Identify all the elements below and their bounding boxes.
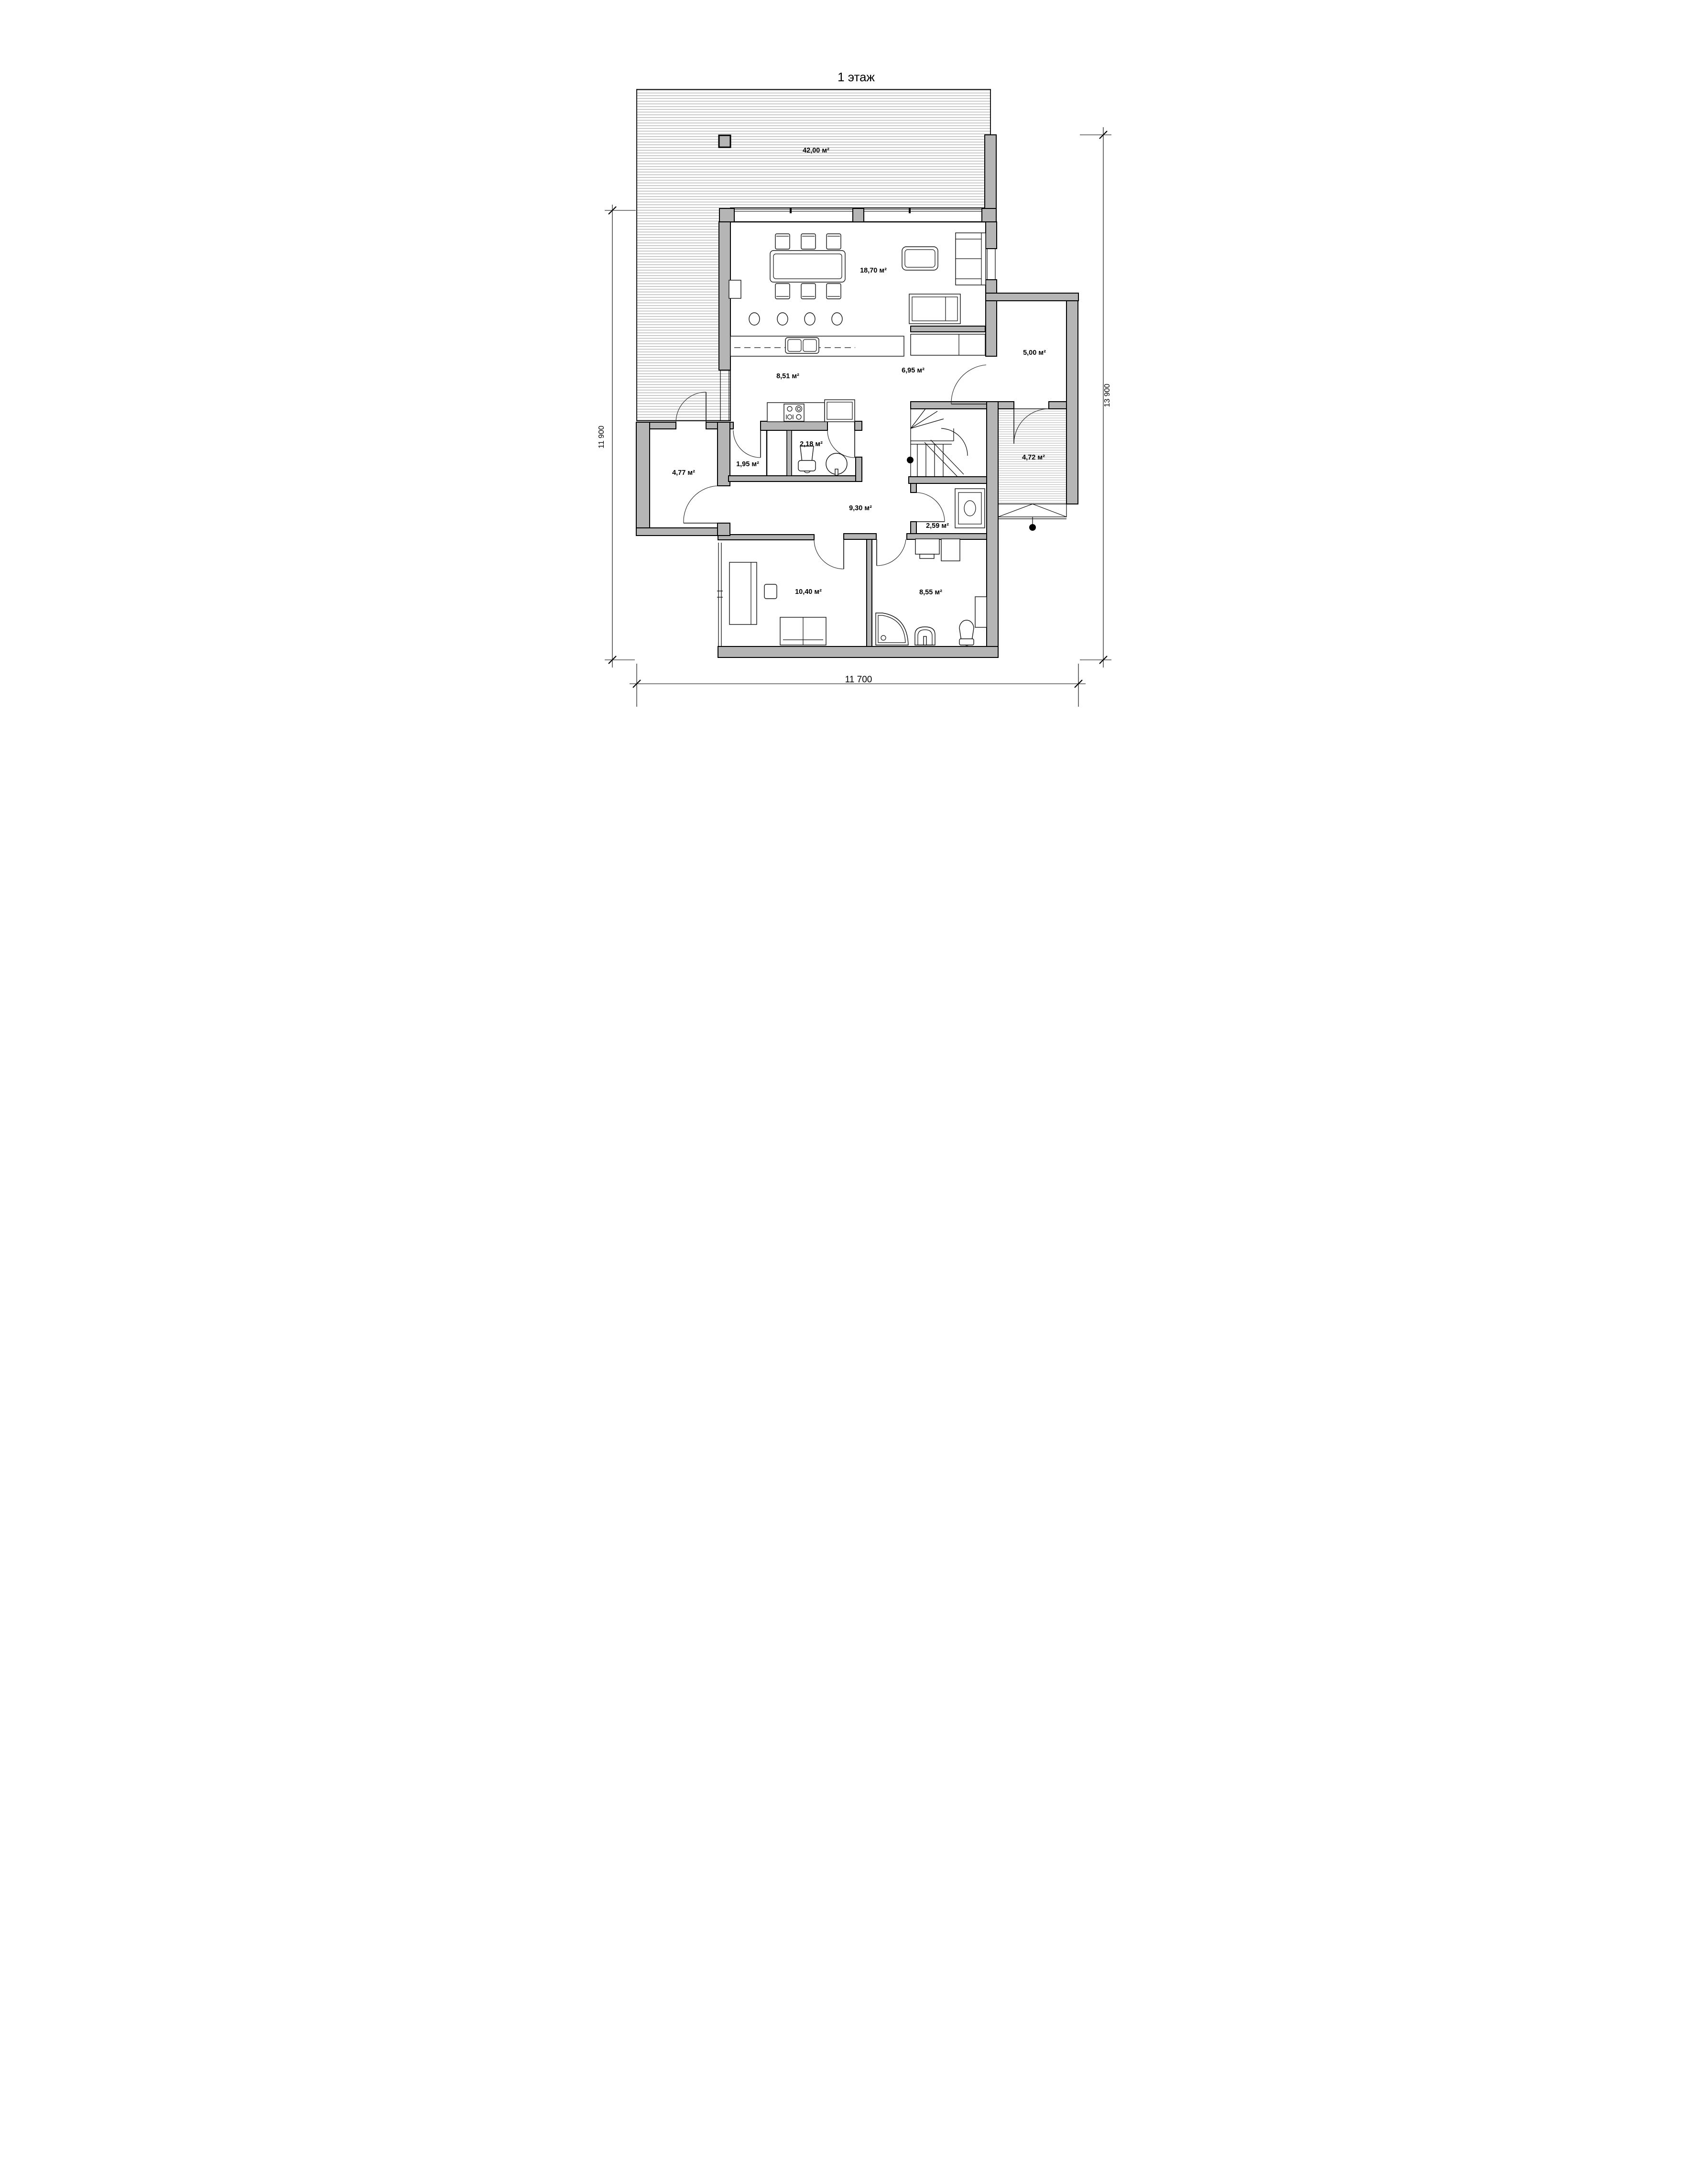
fridge [825, 400, 855, 422]
living-room-window-band [719, 208, 996, 222]
room-label-hallway: 9,30 м² [849, 504, 872, 512]
shower-tray [876, 613, 908, 645]
room-label-storage: 4,77 м² [672, 469, 695, 477]
toilet-symbol-bathroom [959, 620, 974, 646]
staircase [907, 409, 968, 477]
washbasin-wc [826, 453, 847, 475]
room-label-bathroom: 8,55 м² [919, 589, 942, 596]
dimension-text-right: 13 900 [1103, 383, 1111, 407]
dimension-text-left: 11 900 [598, 426, 606, 449]
desk [729, 562, 757, 624]
room-label-pantry: 5,00 м² [1023, 349, 1046, 357]
dining-table [770, 251, 845, 282]
dimension-bottom [630, 664, 1086, 707]
dimension-text-bottom: 11 700 [845, 675, 872, 685]
drawing-sheet: 1 этаж 42,00 м² 18,70 м² 8,51 м² 6,95 м²… [569, 0, 1139, 726]
terrace-post [719, 135, 730, 147]
stair-reference-dot [907, 457, 914, 463]
room-label-small-hall: 1,95 м² [736, 460, 759, 468]
room-label-vestibule: 4,72 м² [1022, 454, 1045, 461]
tall-cabinet [975, 597, 987, 627]
room-label-kitchen: 8,51 м² [776, 372, 799, 380]
entrance-porch [998, 504, 1066, 531]
sideboard [729, 280, 741, 298]
sofa [956, 233, 986, 285]
room-label-boiler: 2,59 м² [926, 522, 949, 530]
pedestal-sink [915, 627, 935, 645]
room-label-living: 18,70 м² [860, 267, 887, 274]
room-label-inner-hall: 6,95 м² [902, 367, 925, 374]
room-label-terrace: 42,00 м² [803, 147, 829, 154]
hall-wardrobe [911, 334, 985, 355]
coffee-table [902, 247, 938, 270]
kitchen-sink [785, 338, 819, 353]
room-label-wc: 2,18 м² [800, 440, 823, 448]
page-title: 1 этаж [838, 70, 875, 84]
toilet-symbol-wc [798, 446, 816, 473]
stove [784, 404, 804, 421]
boiler-unit [955, 489, 985, 528]
room-label-bedroom: 10,40 м² [795, 588, 822, 596]
bathroom-cabinet [941, 539, 960, 561]
daybed [909, 294, 960, 324]
bar-stools [749, 313, 842, 325]
dimension-left [605, 205, 636, 668]
porch-reference-dot [1029, 524, 1036, 531]
bedroom-wardrobe [780, 617, 826, 645]
desk-chair [764, 584, 777, 599]
washing-machine [915, 539, 939, 558]
floor-plan-svg: 1 этаж 42,00 м² 18,70 м² 8,51 м² 6,95 м²… [569, 0, 1139, 726]
